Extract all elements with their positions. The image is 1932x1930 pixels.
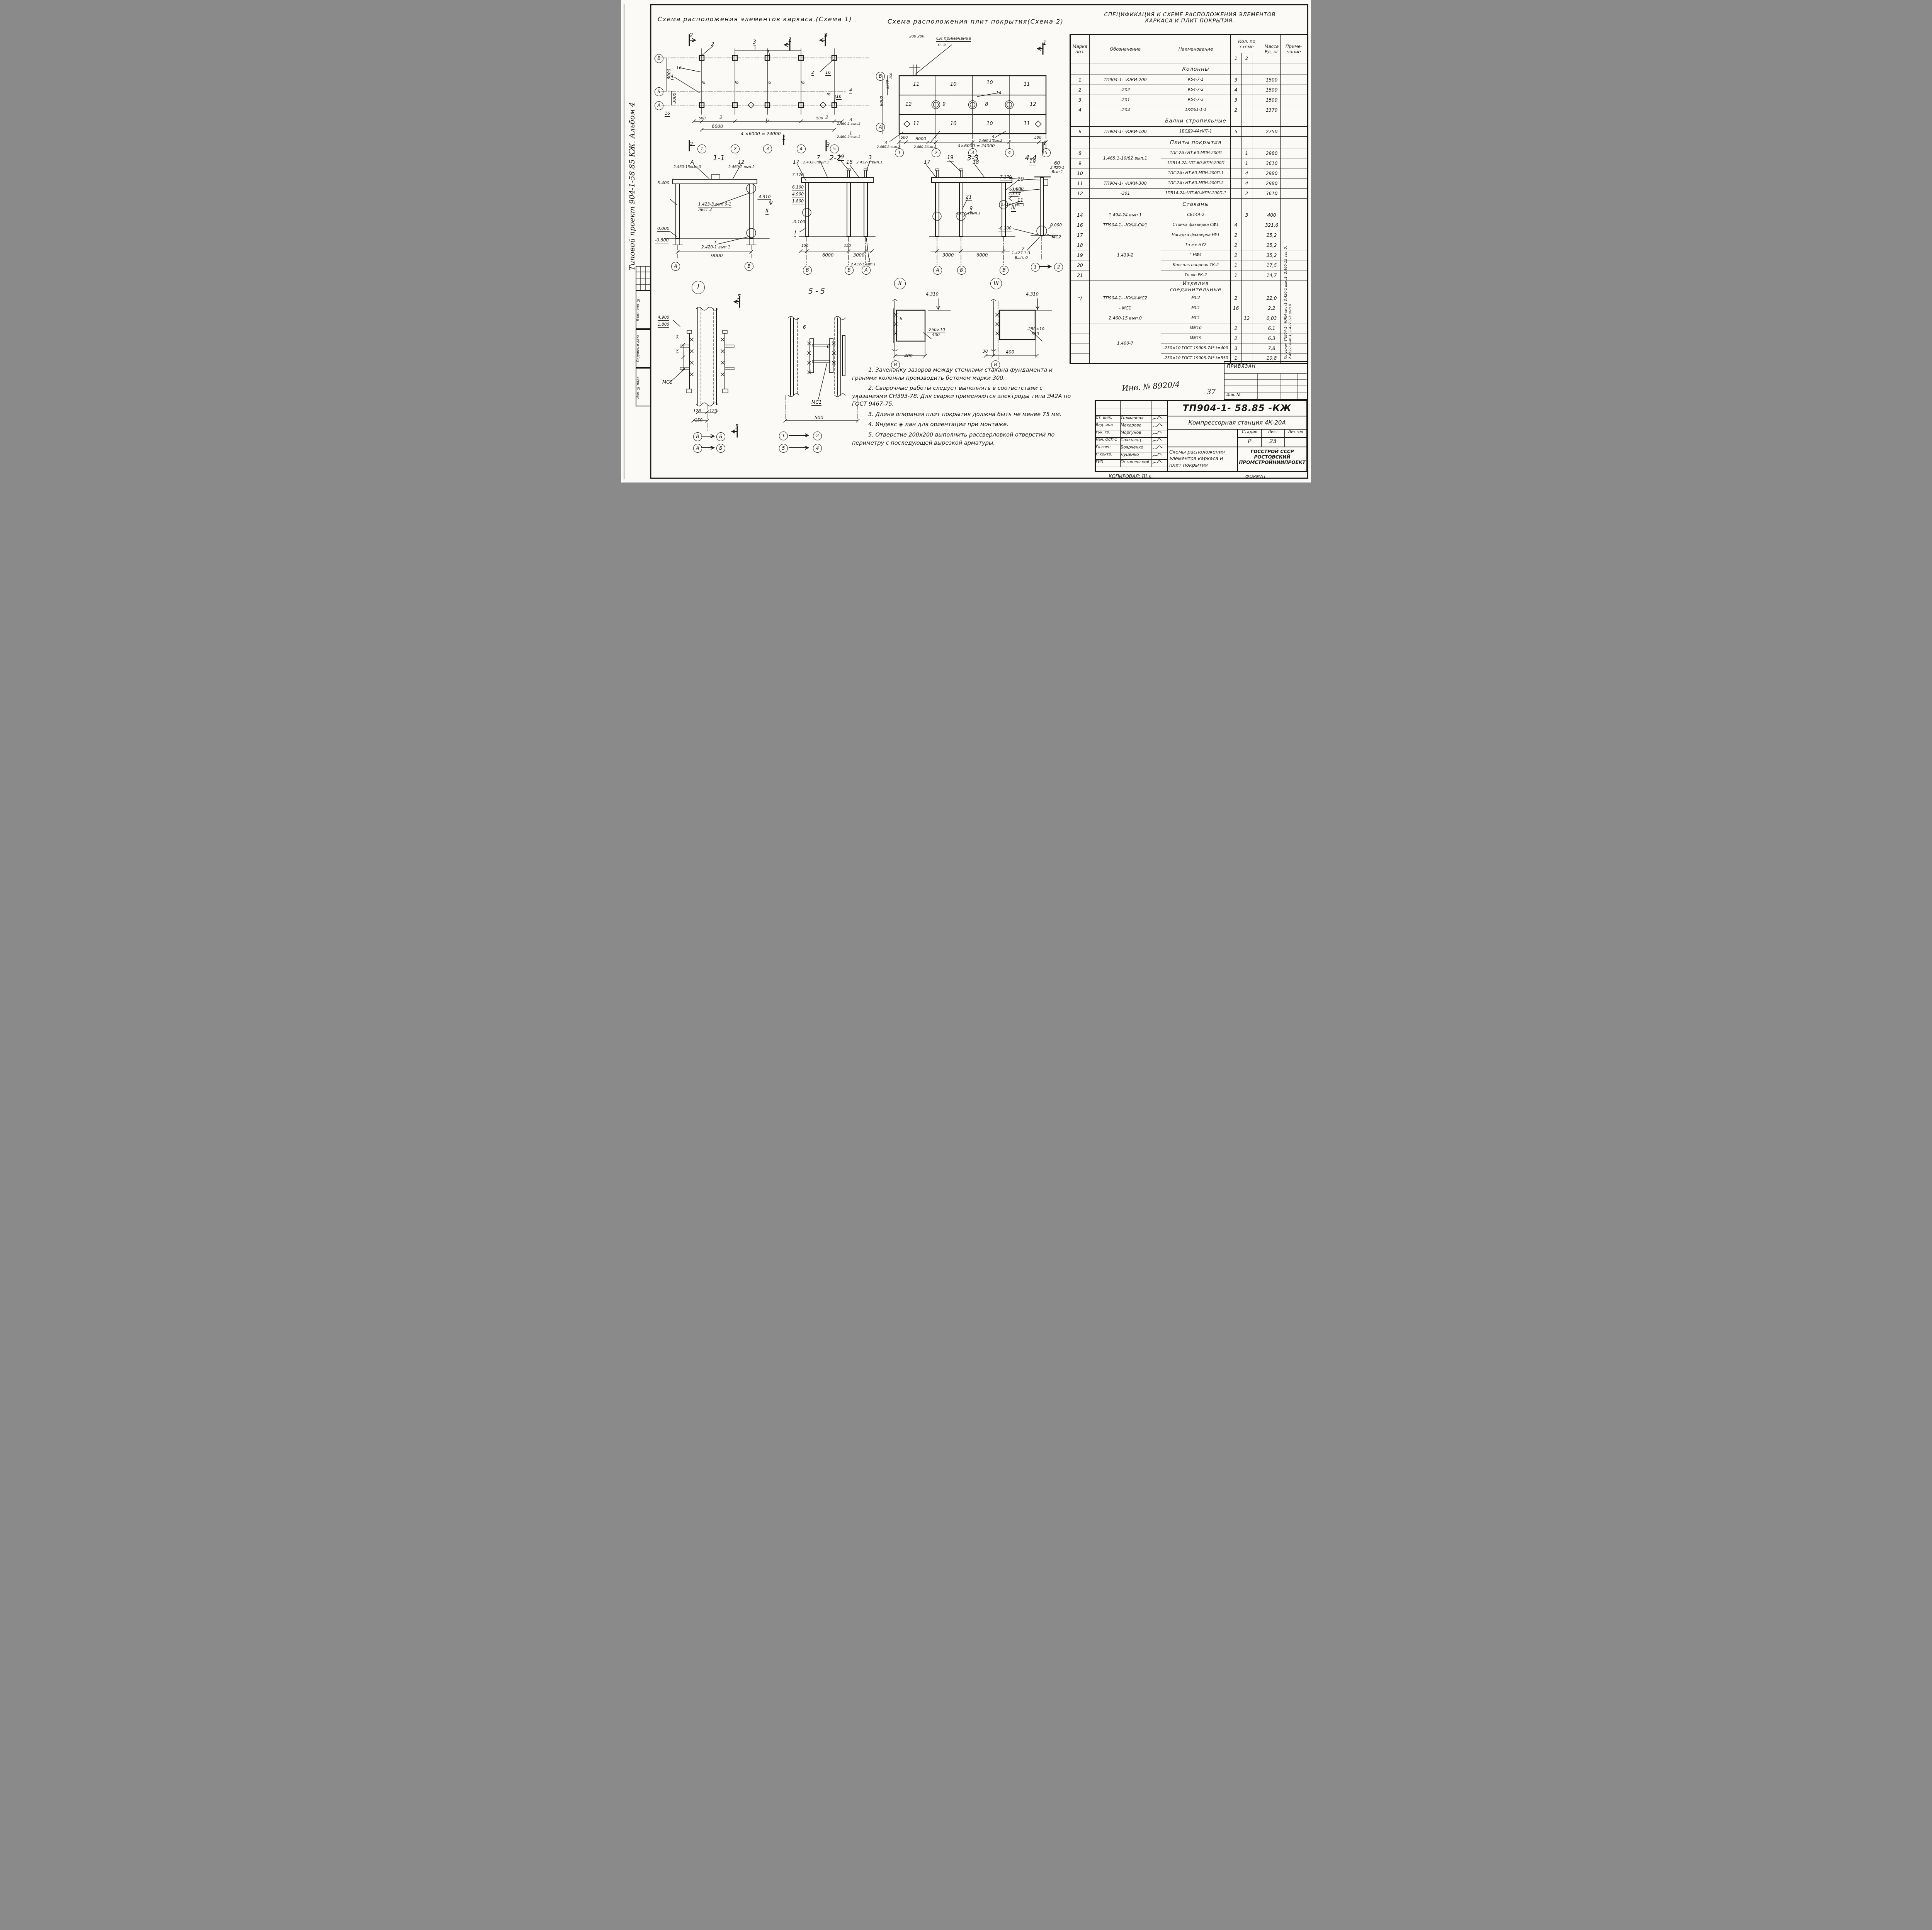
sheets-header: Листов (1285, 430, 1306, 437)
cut-3: 3 (824, 32, 828, 39)
pos-ms2: МС2 (1052, 235, 1061, 240)
axis-b: Б (845, 266, 854, 275)
spec-cell: 2 (1070, 85, 1090, 95)
spec-cell: 6 (1070, 127, 1090, 137)
signature-area: Ст. инж.ТолмачеваВед. инж.МакароваРук. г… (1096, 401, 1168, 471)
signer-role: Нач. ОСП-1 (1096, 438, 1121, 445)
spec-table-region: Маркапоз.ОбозначениеНаименованиеКол. по … (1070, 34, 1308, 364)
spec-row: 1ТП904-1- -КЖИ-200К54-7-131500 (1070, 75, 1308, 85)
detail-II-mark: II (894, 278, 906, 289)
spec-cell (1231, 63, 1242, 75)
pos-14: 14 (996, 90, 1002, 95)
spec-cell: 2 (1242, 189, 1252, 199)
spec-cell: 3 (1242, 210, 1252, 220)
weld-6: 6 (900, 316, 903, 321)
spec-cell: 2 (1231, 250, 1242, 260)
dim-6000-b: 6000 (915, 137, 926, 141)
spec-cell: 17 (1070, 230, 1090, 240)
spec-cell: 321,6 (1263, 220, 1281, 230)
spec-cell: 1370 (1263, 105, 1281, 115)
elev-4900: 4.900 (658, 316, 669, 321)
spec-cell: 1.400-7 (1090, 323, 1161, 364)
spec-cell (1252, 210, 1263, 220)
title: 5 - 5 (808, 288, 825, 296)
see-note: См.примечание (936, 36, 971, 42)
spec-cell (1263, 137, 1281, 148)
pos-21: 21 (966, 195, 972, 201)
ref-2460-2a: 2.460-2 вып.2 (877, 146, 900, 149)
pos-18: 18 (973, 160, 979, 166)
spec-cell: -204 (1090, 105, 1161, 115)
signer-name: Макарова (1121, 423, 1151, 430)
spec-cell (1070, 199, 1090, 210)
spec-cell: Балки стропильные (1161, 115, 1231, 127)
spec-cell: То же НУ2 (1161, 240, 1231, 250)
dim-500-l: 500 (901, 136, 908, 140)
spec-cell (1231, 115, 1242, 127)
spec-cell (1252, 280, 1263, 293)
elev-m0800: -0.800 (655, 238, 668, 243)
signer-name: Осташевский (1121, 460, 1151, 467)
spec-cell (1242, 137, 1252, 148)
scheme1-linework (654, 30, 876, 159)
signature-row: ГИПОсташевский (1096, 460, 1167, 467)
side-stamp-vzam: Взам. инв. № (636, 291, 651, 329)
spec-cell: 3 (1231, 95, 1242, 105)
spec-cell: 1 (1242, 158, 1252, 168)
elev-4310: 4.310 (1026, 292, 1039, 297)
spec-cell (1242, 240, 1252, 250)
signer-role: ГИП (1096, 460, 1121, 467)
spec-cell: Изделия соединительные (1161, 280, 1231, 293)
signer-signature (1151, 452, 1167, 459)
ref-2420b: Вып.1 (1052, 170, 1063, 174)
spec-cell (1242, 343, 1252, 353)
axis-2: 2 (1054, 263, 1063, 272)
ref-1423: 1.423-3 вып.0-1 (698, 202, 731, 207)
pos-4-r: 4 (849, 88, 852, 93)
elev-0000: 0.000 (1050, 223, 1062, 228)
note-item: 2. Сварочные работы следует выполнять в … (852, 384, 1076, 408)
spec-cell: 1500 (1263, 85, 1281, 95)
dim-150a: 150 (801, 244, 808, 248)
spec-header-cell: Обозначение (1090, 35, 1161, 63)
scheme1-title: Схема расположения элементов каркаса.(Сх… (658, 15, 852, 23)
dim-24000: 4×6000 = 24000 (958, 144, 995, 148)
spec-cell (1242, 199, 1252, 210)
cut-5-top: 5 (737, 294, 741, 300)
spec-cell (1263, 280, 1281, 293)
elev-6100: 6.100 (792, 185, 804, 190)
spec-cell (1070, 353, 1090, 364)
spec-row: 3-201К54-7-331500 (1070, 95, 1308, 105)
spec-cell (1281, 158, 1308, 168)
spec-cell: 1ПГ-2АтVIТ-60-МПН-200П-2 (1161, 178, 1231, 189)
section-2-2: 2-21772.432-1 вып.1191832.432-1 вып.17.1… (792, 155, 885, 275)
spec-cell (1252, 127, 1263, 137)
signer-signature (1151, 408, 1167, 415)
spec-cell: 1 (1231, 260, 1242, 270)
spec-cell (1252, 115, 1263, 127)
spec-header-cell: Маркапоз. (1070, 35, 1090, 63)
plate-11b: 11 (1024, 82, 1030, 87)
spec-row: 4-2041КФ61-1-121370 (1070, 105, 1308, 115)
spec-cell: -301 (1090, 189, 1161, 199)
spec-cell: -250×10 ГОСТ 19903-74* ℓ=550 (1161, 353, 1231, 364)
spec-cell (1070, 343, 1090, 353)
detail-III: III4.310-250×1055030400В (969, 276, 1069, 370)
spec-cell (1070, 280, 1090, 293)
doc-number: ТП904-1- 58.85 -КЖ (1168, 401, 1306, 416)
spec-cell (1252, 75, 1263, 85)
dim-2300-v: 2300 (886, 80, 890, 89)
cut-3-bot: 3 (826, 142, 830, 148)
spec-cell (1242, 303, 1252, 313)
dim-6000: 6000 (822, 253, 833, 257)
spec-cell (1252, 333, 1263, 343)
spec-cell (1070, 115, 1090, 127)
spec-cell (1252, 270, 1263, 280)
spec-cell: 5 (1231, 127, 1242, 137)
axis-a: А (862, 266, 871, 275)
spec-cell: 2980 (1263, 178, 1281, 189)
dim-400: 400 (1006, 350, 1014, 354)
title-block-spacer (1168, 430, 1237, 447)
stage-value: Р (1238, 438, 1262, 447)
spec-cell: 2 (1231, 293, 1242, 303)
ref-2432a: 2.432-1 вып.1 (803, 161, 829, 165)
spec-cell: 19 (1070, 250, 1090, 260)
spec-cell (1281, 189, 1308, 199)
axis-a: А (933, 266, 942, 275)
ref-2420: 2.420-1 (1050, 166, 1065, 170)
cut-5-bot: 5 (735, 424, 739, 430)
spec-cell: 12 (1242, 313, 1252, 323)
spec-cell: ТП904-1- -КЖИ-300 (1090, 178, 1161, 189)
note-item: 1. Зачеканку зазоров между стенками стак… (852, 366, 1076, 382)
spec-cell: К54-7-2 (1161, 85, 1231, 95)
spec-title: СПЕЦИФИКАЦИЯ К СХЕМЕ РАСПОЛОЖЕНИЯ ЭЛЕМЕН… (1079, 12, 1301, 24)
spec-cell (1070, 313, 1090, 323)
drawing-sheet: Типовой проект 904-1-58.85 КЖ. Альбом 4 … (621, 0, 1311, 482)
ref-2460-2c: 2.460-2 вып.2 (979, 139, 1002, 143)
spec-cell: -202 (1090, 85, 1161, 95)
scheme1: ВБА1234560003000223131642164166666616500… (654, 30, 876, 159)
dim-500-l: 500 (699, 117, 706, 121)
spec-cell: МС1 (1161, 313, 1231, 323)
spec-cell: Колонны (1161, 63, 1231, 75)
org-line3: ПРОМСТРОЙНИИПРОЕКТ (1238, 460, 1306, 465)
spec-section-row: Колонны (1070, 63, 1308, 75)
spec-row: 16ТП904-1- -КЖИ-СФ1Стойка фахверка СФ143… (1070, 220, 1308, 230)
spec-cell: 1БСД9-4АтVIТ-1 (1161, 127, 1231, 137)
plate-9: 9 (942, 102, 946, 107)
ref-2432b: 2.432-1 вып.1 (856, 161, 883, 165)
dim-500-r: 500 (1034, 136, 1041, 140)
spec-section-row: Плиты покрытия (1070, 137, 1308, 148)
pos-1-b: 1 (765, 117, 768, 122)
ref-2420-1: 2.420-1 вып.1 (701, 245, 730, 250)
signature-row: Н.контр.Луценко (1096, 452, 1167, 460)
dim-24000: 4 ×6000 = 24000 (741, 131, 781, 136)
spec-cell (1252, 85, 1263, 95)
spec-cell (1231, 189, 1242, 199)
spec-cell: 3 (1231, 343, 1242, 353)
spec-cell (1252, 293, 1263, 303)
org-line2: РОСТОВСКИЙ (1238, 454, 1306, 460)
spec-cell: 6,1 (1263, 323, 1281, 333)
scheme2: 200 200См.примечаниеп. 5ВА11101011141298… (876, 30, 1069, 159)
signature-scribble (1151, 430, 1163, 437)
pos-17: 17 (924, 160, 930, 166)
spec-cell: 4 (1070, 105, 1090, 115)
ref-2460-2b: 2.460-2 вып.2 (837, 136, 861, 139)
spec-cell: 2 (1231, 333, 1242, 343)
axis-1: 1 (779, 432, 788, 440)
detail-I: I554.9001.8007575МС1120120150ВБАБ (658, 276, 754, 454)
pos-ms1: МС1 (662, 380, 672, 385)
axis-v: В (803, 266, 812, 275)
signature-row: Нач. ОСП-1Саакьянц (1096, 438, 1167, 445)
spec-cell (1281, 199, 1308, 210)
spec-cell: 4 (1231, 85, 1242, 95)
spec-cell: -250×10 ГОСТ 19903-74* ℓ=400 (1161, 343, 1231, 353)
spec-cell (1090, 280, 1161, 293)
spec-cell (1242, 105, 1252, 115)
spec-header-cell (1252, 53, 1263, 63)
spec-cell (1281, 105, 1308, 115)
spec-cell: ТП904-1- -КЖИ-МС2 (1090, 293, 1161, 303)
spec-row: 11ТП904-1- -КЖИ-3001ПГ-2АтVIТ-60-МПН-200… (1070, 178, 1308, 189)
spec-section-row: Балки стропильные (1070, 115, 1308, 127)
elev-7170: 7.170 (1000, 175, 1012, 180)
spec-cell (1090, 199, 1161, 210)
elev-7170: 7.170 (792, 173, 804, 178)
axis-b: Б (957, 266, 966, 275)
plate-12b: 12 (1030, 102, 1036, 107)
spec-cell: Насадка фахверка НУ1 (1161, 230, 1231, 240)
spec-cell (1231, 199, 1242, 210)
pos-16-r: 16 (825, 70, 831, 76)
spec-cell (1242, 127, 1252, 137)
axis-b: Б (655, 87, 663, 96)
spec-title-line1: СПЕЦИФИКАЦИЯ К СХЕМЕ РАСПОЛОЖЕНИЯ ЭЛЕМЕН… (1079, 12, 1301, 18)
signer-signature (1151, 445, 1167, 452)
spec-cell (1263, 115, 1281, 127)
signer-name: Луценко (1121, 452, 1151, 459)
pos-2-r: 2 (811, 70, 814, 76)
signer-role (1096, 408, 1121, 415)
spec-cell (1281, 210, 1308, 220)
pos-2: 2 (711, 42, 714, 48)
signer-signature (1151, 460, 1167, 467)
spec-row: 101ПГ-2АтVIТ-60-МПН-200П-142980 (1070, 168, 1308, 178)
note-item: 4. Индекс ◈ дан для ориентации при монта… (852, 421, 1076, 429)
spec-cell: 14 (1070, 210, 1090, 220)
axis-a: А (671, 262, 680, 271)
spec-cell: 8 (1070, 148, 1090, 158)
spec-cell (1242, 260, 1252, 270)
axis-v: В (655, 54, 663, 63)
axis-v: В (876, 72, 885, 81)
pos-17: 17 (793, 160, 799, 166)
dim-30: 30 (983, 350, 988, 354)
spec-cell (1252, 230, 1263, 240)
spec-cell: 18 (1070, 240, 1090, 250)
spec-cell (1242, 75, 1252, 85)
spec-cell (1242, 333, 1252, 343)
spec-cell (1070, 323, 1090, 333)
signature-row: Ст. инж.Толмачева (1096, 416, 1167, 423)
pos-19: 19 (838, 155, 844, 161)
spec-cell (1242, 63, 1252, 75)
axis-1: 1 (1031, 263, 1040, 272)
scheme2-title: Схема расположения плит покрытия(Схема 2… (888, 18, 1063, 25)
title-block: Ст. инж.ТолмачеваВед. инж.МакароваРук. г… (1095, 400, 1308, 472)
title: 1-1 (713, 155, 725, 162)
spec-cell (1281, 168, 1308, 178)
signer-signature (1151, 416, 1167, 423)
spec-cell (1070, 63, 1090, 75)
spec-cell (1252, 313, 1263, 323)
axis-5: 5 (830, 144, 839, 153)
spec-header-cell: Наименование (1161, 35, 1231, 63)
axis-1: 1 (697, 144, 706, 153)
signer-name: Саакьянц (1121, 438, 1151, 445)
signature-scribble (1151, 438, 1163, 444)
spec-cell: 4 (1242, 178, 1252, 189)
spec-cell (1231, 168, 1242, 178)
ref-2460-2b: 2.460-2вып.2 (914, 146, 936, 149)
elev-1800: 1.800 (658, 323, 669, 328)
spec-cell: 2750 (1263, 127, 1281, 137)
spec-cell (1252, 199, 1263, 210)
spec-row: 1.400-7ММ1026,1 (1070, 323, 1308, 333)
axis-a: А (693, 444, 702, 453)
spec-cell (1281, 95, 1308, 105)
spec-cell (1070, 303, 1090, 313)
kopiroval-signature: Ш.у. (1142, 474, 1153, 479)
spec-cell (1281, 148, 1308, 158)
note-item: 3. Длина опирания плит покрытия должна б… (852, 411, 1076, 419)
cut-2-bot: 2 (689, 141, 693, 148)
spec-cell: 1.439-2 (1090, 230, 1161, 280)
spec-cell (1231, 210, 1242, 220)
spec-cell: 2 (1231, 240, 1242, 250)
signature-scribble (1151, 423, 1163, 429)
weld-6b: 6 (827, 344, 830, 349)
spec-cell: " НФ4 (1161, 250, 1231, 260)
spec-cell: МС2 (1161, 293, 1231, 303)
spec-cell (1252, 220, 1263, 230)
dim-200-v: 200 (889, 73, 893, 79)
signer-name (1121, 401, 1151, 408)
spec-title-line2: КАРКАСА И ПЛИТ ПОКРЫТИЯ. (1079, 18, 1301, 24)
see-note-p5: п. 5 (938, 42, 946, 47)
spec-cell: 1 (1231, 270, 1242, 280)
spec-cell: 1.465.1-10/82 вып.1 (1090, 148, 1161, 168)
spec-cell: МС1 (1161, 303, 1231, 313)
pos-19: 19 (1029, 159, 1036, 165)
spec-cell (1281, 127, 1308, 137)
axis-1: 1 (895, 148, 904, 157)
spec-cell (1231, 313, 1242, 323)
spec-cell: 2 (1231, 105, 1242, 115)
plate-11d: 11 (1024, 121, 1030, 127)
spec-cell: То же РК-2 (1161, 270, 1231, 280)
pos-16-l: 16 (676, 66, 682, 71)
spec-cell: 400 (1263, 210, 1281, 220)
spec-cell (1252, 323, 1263, 333)
spec-header-cell: МассаЕд, кг (1263, 35, 1281, 63)
spec-cell (1263, 63, 1281, 75)
spec-side-note: По узлам ТП904-1- -КЖИ лист1 2.420-1 вып… (1284, 235, 1306, 359)
cut-1-bot: 1 (1043, 141, 1047, 147)
signer-role (1096, 401, 1121, 408)
spec-row: 6ТП904-1- -КЖИ-1001БСД9-4АтVIТ-152750 (1070, 127, 1308, 137)
axis-2: 2 (813, 432, 822, 440)
spec-cell: 2 (1231, 323, 1242, 333)
dim-400: 400 (904, 353, 913, 358)
cut-2-top: 2 (689, 32, 693, 39)
axis-v: В (745, 262, 753, 271)
spec-cell (1231, 158, 1242, 168)
spec-cell (1252, 148, 1263, 158)
signer-signature (1151, 430, 1167, 437)
section-1-1: 1-1А2.460-15вып.0122.460-2 вып.25.4000.0… (655, 155, 792, 275)
spec-cell: 20 (1070, 260, 1090, 270)
sheet-title: Схемы расположения элементов каркаса и п… (1168, 447, 1237, 471)
side-project-text: Типовой проект 904-1-58.85 КЖ. Альбом 4 (628, 27, 639, 270)
stage-block: Стадия Лист Листов Р 23 (1237, 430, 1306, 447)
spec-cell: ММ19 (1161, 333, 1231, 343)
spec-cell: К54-7-1 (1161, 75, 1231, 85)
spec-cell: Консоль опорная ТК-2 (1161, 260, 1231, 270)
plate-400: 400 (932, 333, 940, 337)
spec-cell (1242, 280, 1252, 293)
dim-3000-v: 3000 (672, 93, 677, 104)
spec-cell (1090, 115, 1161, 127)
spec-cell: 4 (1242, 168, 1252, 178)
side-stamp-grid (636, 266, 651, 291)
pos-16-bl: 16 (665, 111, 670, 117)
axis-v: В (693, 432, 702, 441)
spec-cell (1070, 333, 1090, 343)
dim-200-200: 200 200 (909, 35, 924, 39)
spec-cell: 21 (1070, 270, 1090, 280)
detail-II: II4.3106-250×10400400В (874, 276, 967, 370)
dim-6000: 6000 (976, 253, 988, 257)
detail-III-linework (969, 276, 1069, 370)
spec-cell (1242, 85, 1252, 95)
spec-cell (1252, 158, 1263, 168)
organization: ГОССТРОЙ СССР РОСТОВСКИЙ ПРОМСТРОЙНИИПРО… (1237, 447, 1306, 471)
spec-cell: *) (1070, 293, 1090, 303)
project-name: Компрессорная станция 4К-20А (1168, 416, 1306, 430)
spec-row: 12-3011ПВ14-2АтVIТ-60-МПН-200П-123610 (1070, 189, 1308, 199)
dim-150: 150 (695, 418, 702, 423)
spec-cell (1090, 137, 1161, 148)
spec-cell (1252, 250, 1263, 260)
pos-18: 18 (846, 160, 853, 166)
spec-header-cell: Кол. по схеме (1231, 35, 1263, 53)
signature-empty-row (1096, 401, 1167, 408)
detail-I-ref: I (794, 230, 796, 237)
signer-name: Толмачева (1121, 416, 1151, 423)
spec-row: *)ТП904-1- -КЖИ-МС2МС2222,0 (1070, 293, 1308, 303)
spec-cell: 10 (1070, 168, 1090, 178)
spec-cell (1252, 137, 1263, 148)
